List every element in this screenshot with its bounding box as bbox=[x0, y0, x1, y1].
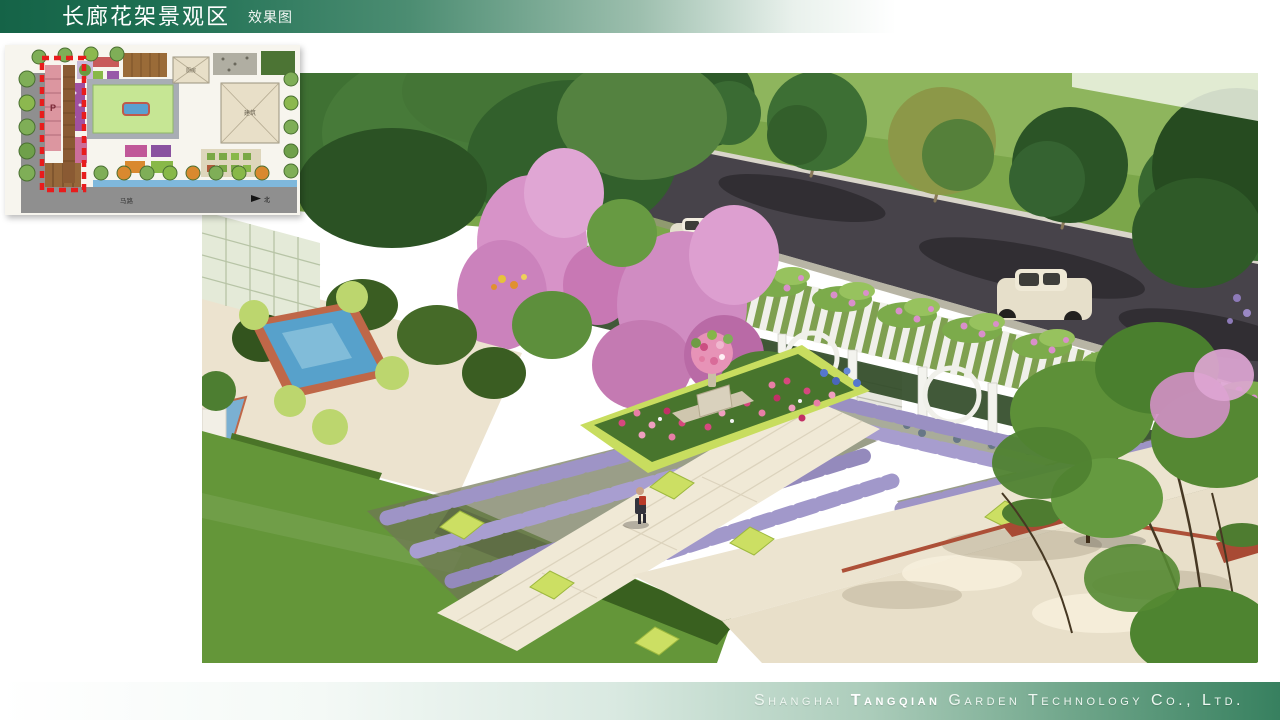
company-name-suffix: Garden Technology Co., Ltd. bbox=[940, 692, 1244, 709]
page-subtitle: 效果图 bbox=[248, 7, 293, 27]
plan-north-label: 北 bbox=[264, 196, 270, 204]
plan-building-small-label: 厨房 bbox=[186, 67, 196, 74]
plan-water-strip bbox=[93, 180, 297, 187]
plan-road-label: 马路 bbox=[120, 196, 134, 205]
rendering-image bbox=[202, 73, 1258, 663]
plan-lawn-court bbox=[87, 79, 179, 139]
plan-corridor bbox=[63, 65, 75, 183]
site-plan-thumbnail: 厨房 建筑 bbox=[5, 45, 300, 215]
plan-pool bbox=[123, 103, 149, 115]
page-title: 长廊花架景观区 bbox=[62, 0, 230, 33]
plan-building-large-label: 建筑 bbox=[244, 109, 256, 117]
company-name: Shanghai Tangqian Garden Technology Co.,… bbox=[754, 692, 1244, 710]
company-name-emphasis: Tangqian bbox=[851, 692, 941, 709]
company-name-prefix: Shanghai bbox=[754, 692, 851, 709]
slide-header: 长廊花架景观区 效果图 bbox=[0, 0, 1280, 33]
rendering-svg bbox=[202, 73, 1258, 663]
slide-footer: Shanghai Tangqian Garden Technology Co.,… bbox=[0, 682, 1280, 720]
site-plan-svg: 厨房 建筑 bbox=[5, 45, 300, 215]
plan-parking-label: P bbox=[50, 103, 56, 113]
